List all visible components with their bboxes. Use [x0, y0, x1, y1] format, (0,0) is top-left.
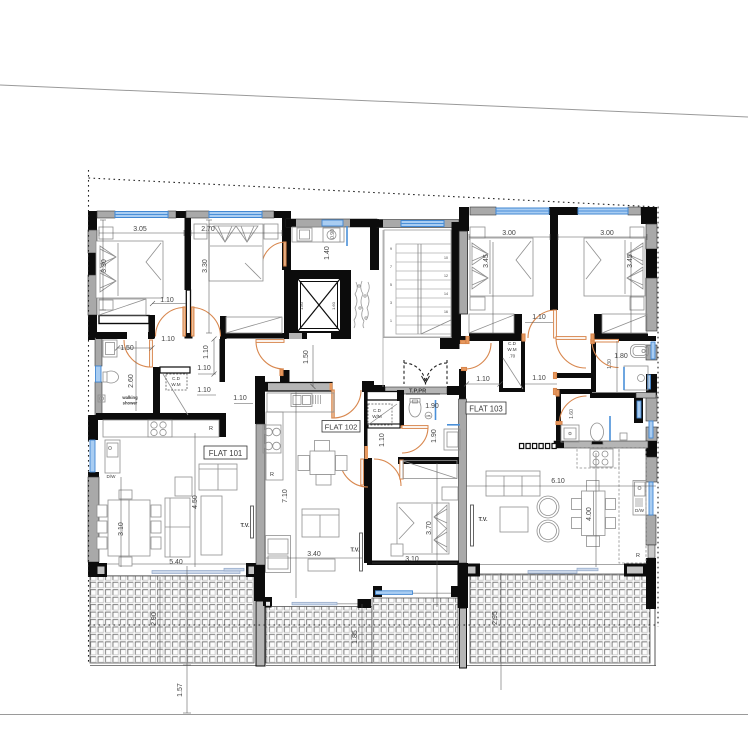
svg-text:1.10: 1.10 — [161, 336, 175, 343]
svg-text:C.D: C.D — [508, 341, 517, 346]
svg-text:3.45: 3.45 — [483, 254, 490, 268]
svg-text:R: R — [636, 553, 640, 559]
svg-text:2.90: 2.90 — [151, 612, 158, 626]
svg-text:1.50: 1.50 — [303, 350, 310, 364]
svg-text:1.30: 1.30 — [607, 359, 613, 369]
svg-text:1.90: 1.90 — [425, 403, 439, 410]
svg-text:3.30: 3.30 — [101, 259, 108, 273]
svg-text:1.10: 1.10 — [233, 395, 247, 402]
svg-text:0.90: 0.90 — [330, 229, 336, 239]
svg-text:1.85: 1.85 — [352, 630, 359, 644]
svg-text:1.10: 1.10 — [379, 433, 386, 447]
svg-text:1.10: 1.10 — [160, 297, 174, 304]
svg-text:10: 10 — [444, 256, 448, 260]
svg-text:T.V.: T.V. — [479, 517, 488, 523]
svg-text:3.10: 3.10 — [405, 556, 419, 563]
svg-text:7: 7 — [390, 265, 392, 269]
svg-text:4.50: 4.50 — [192, 495, 199, 509]
svg-text:1.10: 1.10 — [197, 365, 211, 372]
svg-text:1.60: 1.60 — [569, 409, 575, 419]
svg-text:C.D: C.D — [172, 376, 181, 381]
svg-text:W.M: W.M — [507, 347, 516, 352]
svg-text:1.10: 1.10 — [197, 387, 211, 394]
svg-text:9: 9 — [390, 247, 392, 251]
svg-text:1.90: 1.90 — [431, 429, 438, 443]
svg-text:1.80: 1.80 — [299, 301, 304, 310]
svg-text:walking: walking — [121, 395, 138, 400]
svg-text:3.00: 3.00 — [502, 230, 516, 237]
svg-text:FLAT 103: FLAT 103 — [469, 405, 503, 414]
svg-text:W.M: W.M — [171, 382, 180, 387]
svg-text:C.D: C.D — [373, 408, 382, 413]
svg-text:.70: .70 — [509, 354, 516, 359]
svg-text:7.10: 7.10 — [282, 489, 289, 503]
svg-text:14: 14 — [444, 292, 448, 296]
svg-text:1.10: 1.10 — [203, 345, 210, 359]
svg-text:1.10: 1.10 — [532, 375, 546, 382]
svg-text:2.70: 2.70 — [201, 226, 215, 233]
svg-text:D/W: D/W — [107, 474, 117, 479]
svg-text:FLAT 101: FLAT 101 — [209, 449, 243, 458]
svg-text:3.00: 3.00 — [600, 230, 614, 237]
svg-text:3: 3 — [390, 301, 392, 305]
svg-text:16: 16 — [444, 310, 448, 314]
svg-text:FLAT 102: FLAT 102 — [325, 423, 358, 432]
svg-text:1.80: 1.80 — [614, 353, 628, 360]
svg-text:3.30: 3.30 — [202, 259, 209, 273]
svg-text:3.05: 3.05 — [133, 226, 147, 233]
svg-text:1.50: 1.50 — [120, 345, 134, 352]
svg-text:4.00: 4.00 — [586, 507, 593, 521]
svg-text:3.70: 3.70 — [426, 521, 433, 535]
svg-text:3.10: 3.10 — [118, 522, 125, 536]
svg-text:PB: PB — [426, 414, 430, 418]
svg-text:2.60: 2.60 — [128, 374, 135, 388]
svg-text:T.V.: T.V. — [241, 523, 250, 529]
svg-text:1.60: 1.60 — [331, 301, 336, 310]
svg-text:6.10: 6.10 — [551, 478, 565, 485]
svg-text:2.95: 2.95 — [492, 611, 499, 625]
svg-text:1: 1 — [390, 319, 392, 323]
svg-text:W/M: W/M — [372, 414, 382, 419]
svg-text:3.45: 3.45 — [627, 254, 634, 268]
svg-text:3.40: 3.40 — [307, 551, 321, 558]
svg-text:5.40: 5.40 — [169, 559, 183, 566]
svg-text:R: R — [209, 426, 213, 432]
svg-text:shower: shower — [123, 401, 138, 406]
svg-text:R: R — [270, 472, 274, 478]
svg-text:1.10: 1.10 — [476, 376, 490, 383]
svg-text:1.10: 1.10 — [532, 314, 546, 321]
svg-text:1.40: 1.40 — [324, 246, 331, 260]
svg-text:1.57: 1.57 — [177, 683, 184, 697]
svg-text:12: 12 — [444, 274, 448, 278]
svg-text:T.V.: T.V. — [351, 548, 360, 554]
svg-text:D/W: D/W — [635, 508, 645, 513]
svg-text:5: 5 — [390, 283, 392, 287]
